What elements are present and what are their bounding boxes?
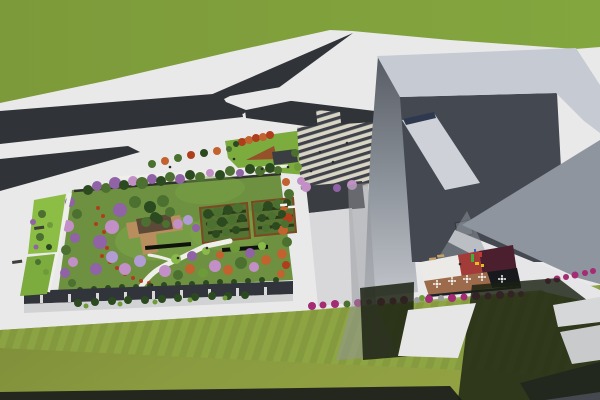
vegetation-dot	[294, 163, 302, 171]
vegetation-dot	[83, 185, 93, 195]
table-seat-dot	[451, 283, 453, 285]
detail-rect	[152, 291, 155, 299]
vegetation-dot	[115, 266, 119, 270]
vegetation-dot	[284, 189, 294, 199]
vegetation-dot	[74, 299, 82, 307]
vegetation-dot	[332, 161, 335, 164]
vegetation-dot	[108, 297, 116, 305]
vegetation-dot	[223, 265, 233, 275]
vegetation-dot	[36, 233, 44, 241]
vegetation-dot	[245, 164, 255, 174]
vegetation-dot	[91, 298, 99, 306]
gray-tower	[364, 48, 600, 305]
vegetation-dot	[139, 279, 143, 283]
vegetation-dot	[185, 170, 195, 180]
vegetation-dot	[227, 215, 237, 225]
vegetation-dot	[222, 228, 230, 236]
vegetation-dot	[174, 294, 182, 302]
vegetation-dot	[72, 209, 82, 219]
table-seat-dot	[484, 276, 486, 278]
detail-rect	[475, 262, 479, 265]
vegetation-dot	[258, 242, 266, 250]
vegetation-dot	[419, 295, 425, 301]
vegetation-dot	[129, 196, 141, 208]
vegetation-dot	[268, 212, 276, 220]
vegetation-dot	[215, 170, 225, 180]
vegetation-dot	[173, 270, 183, 280]
vegetation-dot	[272, 222, 280, 230]
vegetation-dot	[258, 214, 266, 222]
vegetation-dot	[287, 166, 290, 169]
vegetation-dot	[282, 178, 290, 186]
vegetation-dot	[238, 138, 246, 146]
vegetation-dot	[153, 300, 158, 305]
vegetation-dot	[92, 181, 102, 191]
vegetation-dot	[171, 254, 181, 264]
vegetation-dot	[216, 251, 224, 259]
vegetation-dot	[590, 268, 596, 274]
vegetation-dot	[233, 141, 239, 147]
vegetation-dot	[425, 295, 433, 303]
vegetation-dot	[105, 220, 119, 234]
vegetation-dot	[310, 170, 313, 173]
vegetation-dot	[320, 302, 327, 309]
vegetation-dot	[263, 201, 273, 211]
vegetation-dot	[60, 268, 70, 278]
vegetation-dot	[209, 260, 221, 272]
vegetation-dot	[206, 247, 209, 250]
vegetation-dot	[165, 207, 175, 217]
vegetation-dot	[161, 157, 169, 165]
vegetation-dot	[141, 217, 151, 227]
vegetation-dot	[346, 142, 349, 145]
table-seat-dot	[481, 273, 483, 275]
detail-rect	[68, 294, 71, 302]
table-seat-dot	[439, 283, 441, 285]
vegetation-dot	[159, 265, 171, 277]
vegetation-dot	[101, 214, 105, 218]
vegetation-dot	[148, 160, 156, 168]
vegetation-dot	[582, 270, 588, 276]
vegetation-dot	[319, 151, 322, 154]
vegetation-dot	[93, 235, 107, 249]
table-seat-dot	[466, 281, 468, 283]
table-seat-dot	[463, 278, 465, 280]
vegetation-dot	[68, 279, 76, 287]
vegetation-dot	[84, 304, 89, 309]
vegetation-dot	[261, 255, 271, 265]
vegetation-dot	[253, 203, 263, 213]
vegetation-dot	[277, 249, 287, 259]
vegetation-dot	[198, 268, 208, 278]
vegetation-dot	[223, 296, 228, 301]
vegetation-dot	[241, 291, 249, 299]
vegetation-dot	[448, 294, 456, 302]
vegetation-dot	[175, 174, 185, 184]
vegetation-dot	[225, 166, 235, 176]
architectural-render	[0, 0, 600, 400]
vegetation-dot	[261, 168, 264, 171]
detail-rect	[264, 287, 267, 295]
vegetation-dot	[46, 244, 52, 250]
vegetation-dot	[38, 210, 46, 218]
vegetation-dot	[30, 219, 36, 225]
vegetation-dot	[90, 263, 102, 275]
table-seat-dot	[436, 280, 438, 282]
vegetation-dot	[217, 217, 227, 227]
vegetation-dot	[153, 214, 163, 224]
vegetation-dot	[43, 269, 49, 275]
vegetation-dot	[119, 263, 131, 275]
table-seat-dot	[501, 275, 503, 277]
vegetation-dot	[119, 180, 129, 190]
detail-rect	[471, 254, 474, 262]
vegetation-dot	[169, 166, 172, 169]
table-seat-dot	[466, 275, 468, 277]
vegetation-dot	[68, 257, 78, 267]
vegetation-dot	[96, 206, 100, 210]
vegetation-dot	[173, 219, 183, 229]
vegetation-dot	[245, 136, 253, 144]
vegetation-dot	[233, 203, 243, 213]
vegetation-dot	[255, 166, 265, 176]
vegetation-dot	[291, 149, 299, 157]
vegetation-dot	[100, 254, 104, 258]
vegetation-dot	[134, 255, 146, 267]
detail-rect	[481, 264, 484, 267]
vegetation-dot	[195, 172, 205, 182]
vegetation-dot	[144, 201, 156, 213]
table-seat-dot	[498, 278, 500, 280]
vegetation-dot	[136, 177, 148, 189]
vegetation-dot	[281, 220, 289, 228]
vegetation-dot	[232, 226, 240, 234]
vegetation-dot	[113, 203, 127, 217]
vegetation-dot	[236, 169, 244, 177]
vegetation-dot	[187, 151, 195, 159]
vegetation-dot	[200, 149, 208, 157]
vegetation-dot	[277, 270, 285, 278]
vegetation-dot	[70, 233, 80, 243]
vegetation-dot	[177, 257, 180, 260]
table-seat-dot	[466, 278, 469, 281]
vegetation-dot	[249, 262, 259, 272]
vegetation-dot	[124, 296, 132, 304]
vegetation-dot	[192, 224, 200, 232]
vegetation-dot	[141, 296, 149, 304]
vegetation-dot	[230, 243, 240, 253]
table-seat-dot	[501, 278, 504, 281]
table-seat-dot	[436, 283, 439, 286]
vegetation-dot	[331, 300, 339, 308]
vegetation-dot	[266, 131, 274, 139]
vegetation-dot	[282, 237, 292, 247]
vegetation-dot	[188, 298, 193, 303]
vegetation-dot	[233, 158, 236, 161]
vegetation-dot	[265, 163, 275, 173]
vegetation-dot	[185, 264, 195, 274]
vegetation-dot	[238, 214, 246, 222]
vegetation-dot	[212, 230, 220, 238]
table-seat-dot	[504, 278, 506, 280]
vegetation-dot	[158, 295, 166, 303]
table-seat-dot	[451, 277, 453, 279]
vegetation-dot	[259, 133, 267, 141]
vegetation-dot	[262, 224, 270, 232]
vegetation-dot	[344, 301, 351, 308]
vegetation-dot	[118, 302, 123, 307]
table-seat-dot	[436, 286, 438, 288]
vegetation-dot	[208, 292, 216, 300]
vegetation-dot	[572, 272, 579, 279]
table-seat-dot	[481, 279, 483, 281]
vegetation-dot	[235, 257, 247, 269]
table-seat-dot	[451, 280, 454, 283]
vegetation-dot	[226, 146, 232, 152]
vegetation-dot	[109, 177, 121, 189]
vegetation-dot	[282, 261, 290, 269]
detail-rect	[236, 288, 239, 296]
vegetation-dot	[102, 230, 106, 234]
vegetation-dot	[105, 246, 109, 250]
vegetation-dot	[157, 195, 169, 207]
vegetation-dot	[213, 207, 223, 217]
vegetation-dot	[459, 263, 462, 266]
vegetation-dot	[162, 220, 170, 228]
vegetation-dot	[34, 245, 39, 250]
vegetation-dot	[165, 172, 175, 182]
vegetation-dot	[223, 205, 233, 215]
table-seat-dot	[481, 276, 484, 279]
vegetation-dot	[106, 251, 118, 263]
vegetation-dot	[563, 274, 569, 280]
vegetation-dot	[35, 259, 41, 265]
vegetation-dot	[213, 147, 221, 155]
vegetation-dot	[131, 276, 135, 280]
vegetation-dot	[94, 222, 98, 226]
vegetation-dot	[183, 215, 193, 225]
vegetation-dot	[174, 154, 182, 162]
detail-rect	[474, 249, 476, 252]
table-seat-dot	[448, 280, 450, 282]
table-seat-dot	[469, 278, 471, 280]
rooftop-garden	[58, 163, 296, 293]
detail-rect	[40, 295, 43, 303]
vegetation-dot	[438, 295, 444, 301]
table-seat-dot	[433, 283, 435, 285]
vegetation-dot	[252, 134, 260, 142]
vegetation-dot	[61, 245, 71, 255]
vegetation-dot	[301, 182, 311, 192]
vegetation-dot	[274, 166, 282, 174]
table-seat-dot	[478, 276, 480, 278]
vegetation-dot	[151, 284, 154, 287]
table-seat-dot	[454, 280, 456, 282]
vegetation-dot	[187, 251, 197, 261]
vegetation-dot	[206, 169, 214, 177]
vegetation-dot	[147, 174, 157, 184]
detail-rect	[479, 252, 482, 257]
vegetation-dot	[245, 248, 255, 258]
vegetation-dot	[156, 176, 166, 186]
vegetation-dot	[461, 294, 468, 301]
vegetation-dot	[333, 184, 341, 192]
vegetation-dot	[278, 210, 286, 218]
vegetation-dot	[308, 302, 316, 310]
vegetation-dot	[207, 219, 217, 229]
vegetation-dot	[203, 209, 213, 219]
vegetation-dot	[47, 222, 53, 228]
